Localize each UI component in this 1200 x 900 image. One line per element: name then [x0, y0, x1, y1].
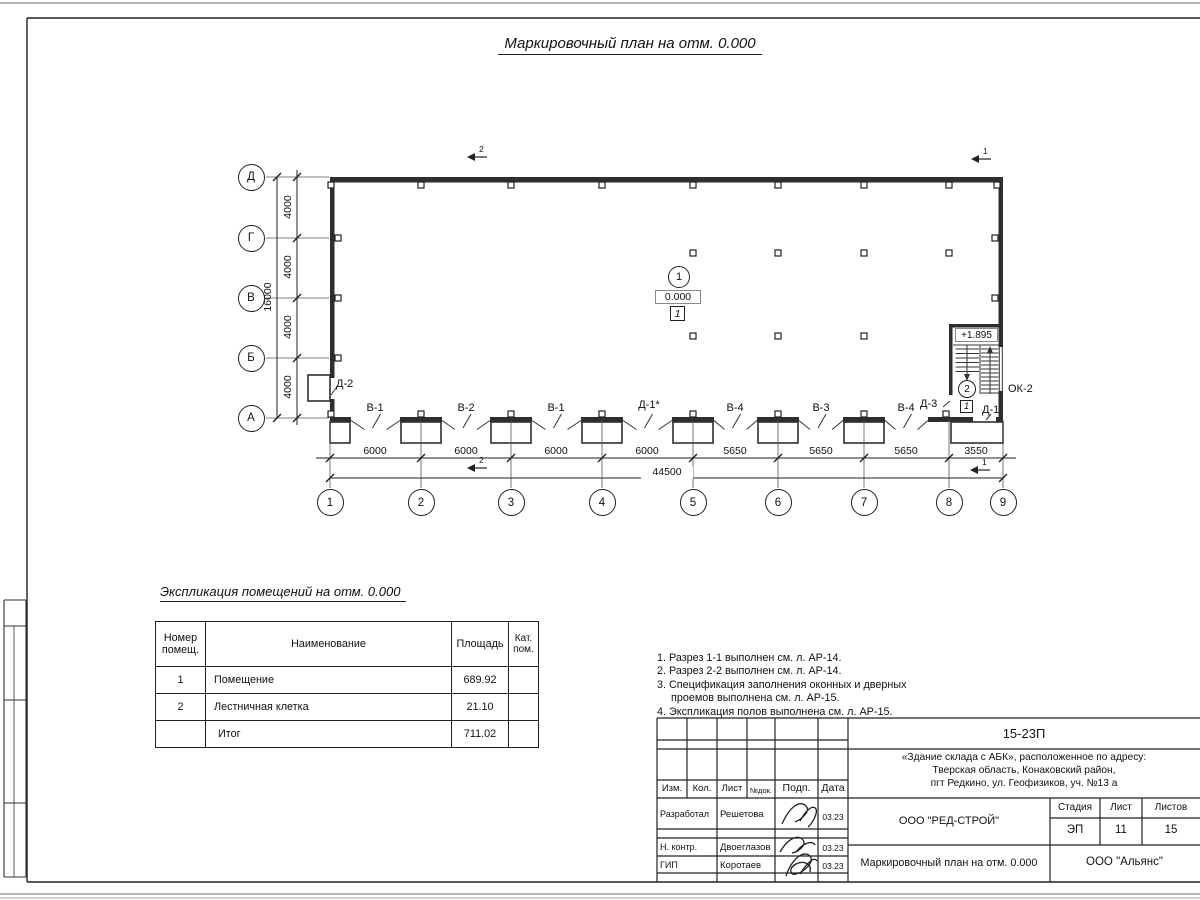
- dim-h-3: 6000: [536, 446, 576, 458]
- opening-label: В-1: [536, 402, 576, 414]
- note-line: 4. Экспликация полов выполнена см. л. АР…: [657, 706, 907, 719]
- opening-label: В-1: [355, 402, 395, 414]
- axis-col-1: 1: [317, 489, 344, 516]
- company-name: ООО "Альянс": [1052, 856, 1197, 868]
- axis-row-d: Д: [238, 164, 265, 191]
- door-d3-label: Д-3: [920, 398, 937, 410]
- room-2-type: 1: [960, 400, 973, 413]
- window-ok2: [999, 347, 1002, 391]
- name-3: Коротаев: [720, 860, 761, 871]
- note-line: проемов выполнена см. л. АР-15.: [671, 692, 907, 705]
- cell-area: 711.02: [452, 721, 509, 748]
- opening-label: В-4: [715, 402, 755, 414]
- section-mark-2-top: 2: [466, 147, 492, 165]
- section-mark-1-top: 1: [970, 149, 996, 167]
- cell-name: Помещение: [206, 667, 452, 694]
- col-podp: Подп.: [775, 782, 818, 794]
- col-ndok: №док.: [747, 786, 775, 795]
- door-d1-label: Д-1: [982, 404, 999, 416]
- dim-v-total: 16000: [262, 277, 274, 317]
- section-arrow-icon: [970, 153, 994, 165]
- left-edge-boxes: [4, 600, 26, 877]
- doc-number: 15-23П: [849, 726, 1199, 741]
- table-row: 1 Помещение 689.92: [156, 667, 539, 694]
- section-arrow-icon: [466, 151, 490, 163]
- note-line: 3. Спецификация заполнения оконных и две…: [657, 679, 907, 692]
- explication-table: Номер помещ. Наименование Площадь Кат. п…: [155, 621, 539, 748]
- sheets-total: 15: [1142, 824, 1200, 836]
- dim-v-3: 4000: [282, 307, 294, 347]
- axis-col-9: 9: [990, 489, 1017, 516]
- signature: [780, 804, 817, 876]
- col-data: Дата: [818, 782, 848, 794]
- dim-v-4: 4000: [282, 367, 294, 407]
- cell-area: 21.10: [452, 694, 509, 721]
- opening-label: Д-1*: [627, 399, 671, 411]
- dimension-lines: [277, 170, 1016, 478]
- cell-num: 1: [156, 667, 206, 694]
- axis-row-v: В: [238, 285, 265, 312]
- room-1-marker: 1: [668, 266, 690, 288]
- door-d2-label: Д-2: [336, 378, 353, 390]
- window-ok2-label: ОК-2: [1008, 383, 1033, 395]
- section-arrow-icon: [466, 462, 490, 474]
- axis-col-3: 3: [498, 489, 525, 516]
- table-row: Итог 711.02: [156, 721, 539, 748]
- col-izm: Изм.: [657, 783, 687, 794]
- date-3: 03.23: [819, 861, 847, 871]
- table-row: 2 Лестничная клетка 21.10: [156, 694, 539, 721]
- stage-label: Стадия: [1050, 802, 1100, 813]
- dim-v-1: 4000: [282, 187, 294, 227]
- room-2-marker: 2: [958, 380, 976, 398]
- project-address-1: «Здание склада с АБК», расположенное по …: [849, 752, 1199, 763]
- dim-h-8: 3550: [956, 446, 996, 458]
- cell-cat: [509, 667, 539, 694]
- sheet-number: 11: [1100, 824, 1142, 836]
- date-1: 03.23: [819, 812, 847, 822]
- notes-block: 1. Разрез 1-1 выполнен см. л. АР-14. 2. …: [657, 652, 907, 719]
- project-address-3: пгт Редкино, ул. Геофизиков, уч. №13 а: [849, 778, 1199, 789]
- note-line: 2. Разрез 2-2 выполнен см. л. АР-14.: [657, 665, 907, 678]
- col-header-num: Номер помещ.: [156, 622, 206, 667]
- name-2: Двоеглазов: [720, 842, 771, 853]
- cell-name: Итог: [206, 721, 452, 748]
- dimension-ticks: [273, 173, 1007, 482]
- dim-h-1: 6000: [355, 446, 395, 458]
- axis-row-b: Б: [238, 345, 265, 372]
- explication-title: Экспликация помещений на отм. 0.000: [160, 583, 500, 602]
- cell-area: 689.92: [452, 667, 509, 694]
- room-1-type: 1: [670, 306, 685, 321]
- stage-value: ЭП: [1050, 824, 1100, 836]
- stamp-sheet-title: Маркировочный план на отм. 0.000: [849, 857, 1049, 869]
- sheet-edges: [0, 3, 1200, 898]
- axis-col-7: 7: [851, 489, 878, 516]
- note-line: 1. Разрез 1-1 выполнен см. л. АР-14.: [657, 652, 907, 665]
- section-mark-2-bottom: 2: [466, 458, 492, 476]
- cell-num: [156, 721, 206, 748]
- axis-col-6: 6: [765, 489, 792, 516]
- cell-num: 2: [156, 694, 206, 721]
- role-1: Разработал: [660, 809, 709, 819]
- extension-lines: [266, 177, 1003, 488]
- cell-cat: [509, 721, 539, 748]
- name-1: Решетова: [720, 809, 764, 820]
- col-header-area: Площадь: [452, 622, 509, 667]
- cell-cat: [509, 694, 539, 721]
- axis-col-4: 4: [589, 489, 616, 516]
- section-mark-1-bottom: 1: [969, 460, 995, 478]
- date-2: 03.23: [819, 843, 847, 853]
- stair-level: +1.895: [955, 328, 998, 342]
- axis-col-8: 8: [936, 489, 963, 516]
- dim-v-2: 4000: [282, 247, 294, 287]
- door-d2-porch: [308, 375, 330, 401]
- opening-label: В-3: [801, 402, 841, 414]
- role-3: ГИП: [660, 860, 678, 870]
- role-2: Н. контр.: [660, 842, 697, 852]
- project-address-2: Тверская область, Конаковский район,: [849, 765, 1199, 776]
- col-list: Лист: [717, 783, 747, 794]
- col-header-name: Наименование: [206, 622, 452, 667]
- opening-label: В-2: [446, 402, 486, 414]
- dim-h-6: 5650: [801, 446, 841, 458]
- cell-name: Лестничная клетка: [206, 694, 452, 721]
- room-1-level: 0.000: [655, 290, 701, 304]
- col-header-cat: Кат. пом.: [509, 622, 539, 667]
- sheets-label: Листов: [1142, 802, 1200, 813]
- org-name: ООО "РЕД-СТРОЙ": [849, 815, 1049, 827]
- axis-row-g: Г: [238, 225, 265, 252]
- axis-row-a: А: [238, 405, 265, 432]
- plan-title: Маркировочный план на отм. 0.000: [400, 35, 860, 55]
- axis-col-2: 2: [408, 489, 435, 516]
- sheet-label: Лист: [1100, 802, 1142, 813]
- col-kol: Кол.: [687, 783, 717, 794]
- dim-h-4: 6000: [627, 446, 667, 458]
- drawing-sheet: Маркировочный план на отм. 0.000 1 2 3 4…: [0, 0, 1200, 900]
- dim-h-5: 5650: [715, 446, 755, 458]
- pier-pads: [330, 422, 1003, 443]
- axis-col-5: 5: [680, 489, 707, 516]
- section-arrow-icon: [969, 464, 993, 476]
- dim-h-total: 44500: [641, 467, 693, 479]
- dim-h-7: 5650: [886, 446, 926, 458]
